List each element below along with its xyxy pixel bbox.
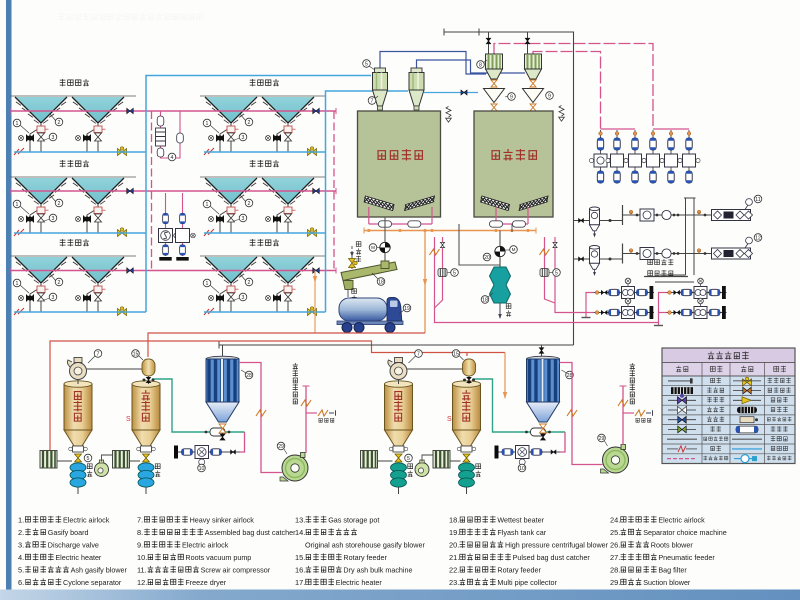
svg-text:2: 2	[248, 120, 251, 126]
svg-text:8.: 8.	[137, 528, 143, 537]
svg-text:8: 8	[479, 62, 482, 68]
svg-text:5.: 5.	[18, 566, 24, 575]
svg-text:Screw air compressor: Screw air compressor	[201, 566, 271, 575]
svg-text:7: 7	[371, 98, 374, 104]
svg-text:Freeze dryer: Freeze dryer	[185, 578, 226, 587]
svg-text:2: 2	[248, 201, 251, 207]
svg-text:18: 18	[482, 297, 488, 303]
svg-text:Rotary feeder: Rotary feeder	[497, 566, 541, 575]
svg-text:29: 29	[599, 436, 605, 442]
svg-text:10: 10	[199, 466, 205, 472]
svg-text:5: 5	[407, 456, 410, 462]
svg-text:6.: 6.	[18, 578, 24, 587]
svg-text:2: 2	[58, 201, 61, 207]
svg-text:10.: 10.	[137, 553, 147, 562]
svg-text:Original ash storehouse gasify: Original ash storehouse gasify blower	[305, 541, 425, 550]
svg-text:Wettest beater: Wettest beater	[497, 516, 544, 525]
svg-text:1: 1	[16, 202, 19, 208]
svg-text:2: 2	[58, 120, 61, 126]
svg-text:4.: 4.	[18, 553, 24, 562]
svg-text:Electric airlock: Electric airlock	[182, 541, 229, 550]
svg-text:15: 15	[453, 351, 459, 357]
svg-text:1.: 1.	[18, 516, 24, 525]
svg-text:Assembled bag dust catcher: Assembled bag dust catcher	[205, 528, 296, 537]
svg-text:20.: 20.	[449, 541, 459, 550]
svg-text:22.: 22.	[449, 566, 459, 575]
svg-text:2.: 2.	[18, 528, 24, 537]
svg-text:1: 1	[206, 202, 209, 208]
svg-text:High pressure centrifugal blow: High pressure centrifugal blower	[505, 541, 609, 550]
svg-text:3: 3	[52, 216, 55, 222]
svg-text:9: 9	[548, 93, 551, 99]
svg-text:20: 20	[484, 255, 490, 261]
svg-text:Multi pipe collector: Multi pipe collector	[497, 578, 557, 587]
svg-text:Gasify board: Gasify board	[48, 528, 89, 537]
svg-text:1: 1	[206, 121, 209, 127]
svg-text:19: 19	[404, 306, 410, 312]
svg-text:14.: 14.	[295, 528, 305, 537]
svg-text:11.: 11.	[137, 566, 147, 575]
svg-text:16.: 16.	[295, 566, 305, 575]
svg-text:28.: 28.	[610, 566, 620, 575]
svg-text:Gas storage pot: Gas storage pot	[328, 516, 379, 525]
svg-text:9.: 9.	[137, 541, 143, 550]
svg-text:Bag filter: Bag filter	[658, 566, 687, 575]
svg-text:Pulsed bag dust catcher: Pulsed bag dust catcher	[513, 553, 591, 562]
svg-text:3: 3	[52, 295, 55, 301]
svg-text:Flyash tank car: Flyash tank car	[497, 528, 546, 537]
svg-text:24.: 24.	[610, 516, 620, 525]
svg-text:1: 1	[16, 281, 19, 287]
svg-text:M: M	[512, 247, 516, 252]
svg-text:3: 3	[52, 135, 55, 141]
svg-text:18: 18	[378, 279, 384, 285]
svg-text:3.: 3.	[18, 541, 24, 550]
svg-text:13.: 13.	[295, 516, 305, 525]
svg-text:15.: 15.	[295, 553, 305, 562]
svg-text:29.: 29.	[610, 578, 620, 587]
svg-text:Suction blower: Suction blower	[643, 578, 691, 587]
svg-text:7.: 7.	[137, 516, 143, 525]
svg-text:4: 4	[171, 155, 174, 161]
svg-text:26.: 26.	[610, 541, 620, 550]
svg-text:Separator choice machine: Separator choice machine	[643, 528, 727, 537]
svg-text:23.: 23.	[449, 578, 459, 587]
svg-text:9: 9	[510, 94, 513, 100]
svg-text:3: 3	[242, 135, 245, 141]
svg-text:Dry ash bulk machine: Dry ash bulk machine	[343, 566, 412, 575]
svg-text:Ash gasify blower: Ash gasify blower	[71, 566, 128, 575]
svg-text:15: 15	[133, 351, 139, 357]
svg-text:10: 10	[519, 466, 525, 472]
svg-text:Heavy sinker airlock: Heavy sinker airlock	[190, 516, 255, 525]
svg-text:5: 5	[87, 456, 90, 462]
svg-text:29: 29	[278, 444, 284, 450]
svg-text:Discharge valve: Discharge valve	[48, 541, 99, 550]
svg-text:Electric airlock: Electric airlock	[658, 516, 705, 525]
svg-text:28: 28	[246, 373, 252, 379]
svg-text:2: 2	[248, 280, 251, 286]
svg-text:S: S	[126, 416, 131, 423]
svg-text:19.: 19.	[449, 528, 459, 537]
svg-text:18.: 18.	[449, 516, 459, 525]
svg-text:Electric airlock: Electric airlock	[63, 516, 110, 525]
svg-text:Electric heater: Electric heater	[55, 553, 102, 562]
svg-text:27.: 27.	[610, 553, 620, 562]
svg-text:Electric heater: Electric heater	[336, 578, 383, 587]
svg-text:Cyclone separator: Cyclone separator	[63, 578, 122, 587]
svg-text:5: 5	[365, 61, 368, 67]
svg-text:3: 3	[242, 216, 245, 222]
svg-text:Roots blower: Roots blower	[651, 541, 694, 550]
svg-text:S: S	[447, 416, 452, 423]
svg-text:M: M	[371, 245, 375, 250]
svg-text:2: 2	[58, 280, 61, 286]
svg-text:11: 11	[755, 197, 760, 203]
svg-text:5: 5	[555, 270, 558, 276]
svg-text:Roots vacuum pump: Roots vacuum pump	[185, 553, 251, 562]
svg-text:12: 12	[755, 235, 761, 241]
svg-text:Rotary feeder: Rotary feeder	[343, 553, 387, 562]
svg-text:1: 1	[206, 281, 209, 287]
svg-text:25.: 25.	[610, 528, 620, 537]
svg-text:7: 7	[97, 351, 100, 357]
svg-text:7: 7	[417, 351, 420, 357]
svg-text:Pneumatic feeder: Pneumatic feeder	[658, 553, 715, 562]
svg-text:21.: 21.	[449, 553, 459, 562]
svg-text:3: 3	[242, 295, 245, 301]
svg-text:17.: 17.	[295, 578, 305, 587]
svg-text:12.: 12.	[137, 578, 147, 587]
svg-text:5: 5	[453, 270, 456, 276]
svg-text:1: 1	[16, 121, 19, 127]
